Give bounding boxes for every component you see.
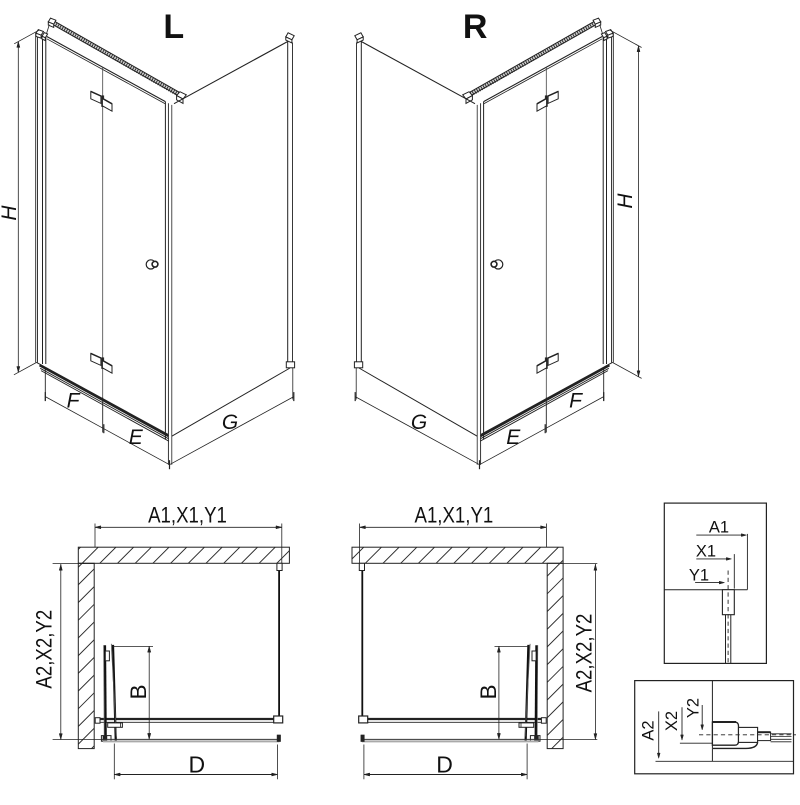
svg-text:Y1: Y1 bbox=[689, 567, 709, 585]
svg-text:A2: A2 bbox=[640, 720, 658, 740]
svg-text:G: G bbox=[222, 411, 238, 434]
svg-text:D: D bbox=[436, 751, 453, 777]
svg-text:X2: X2 bbox=[663, 711, 681, 731]
svg-text:F: F bbox=[67, 390, 81, 413]
svg-text:E: E bbox=[129, 426, 144, 449]
svg-text:A1: A1 bbox=[709, 519, 729, 537]
svg-text:D: D bbox=[188, 751, 205, 777]
svg-text:R: R bbox=[463, 8, 488, 46]
svg-text:A2,X2,Y2: A2,X2,Y2 bbox=[571, 614, 596, 693]
svg-text:H: H bbox=[614, 193, 637, 209]
svg-text:Y2: Y2 bbox=[685, 698, 703, 718]
svg-text:E: E bbox=[506, 426, 521, 449]
svg-text:F: F bbox=[569, 390, 583, 413]
svg-text:L: L bbox=[163, 8, 184, 46]
svg-text:B: B bbox=[476, 684, 501, 699]
svg-text:A1,X1,Y1: A1,X1,Y1 bbox=[148, 502, 227, 527]
svg-text:A1,X1,Y1: A1,X1,Y1 bbox=[415, 502, 494, 527]
svg-text:H: H bbox=[0, 205, 21, 221]
svg-text:G: G bbox=[411, 411, 427, 434]
svg-text:B: B bbox=[126, 684, 151, 699]
svg-text:A2,X2,Y2: A2,X2,Y2 bbox=[31, 610, 56, 689]
svg-text:X1: X1 bbox=[696, 543, 716, 561]
